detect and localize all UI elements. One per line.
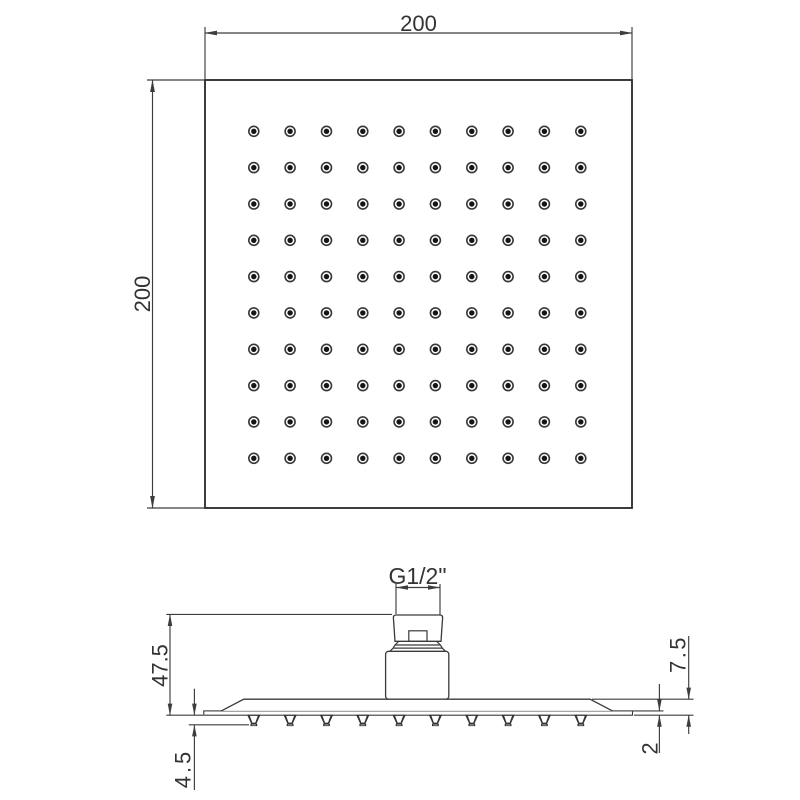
svg-text:200: 200 bbox=[130, 276, 155, 313]
svg-text:4.5: 4.5 bbox=[170, 749, 195, 789]
svg-text:G1/2": G1/2" bbox=[388, 563, 446, 589]
svg-text:200: 200 bbox=[400, 11, 437, 36]
svg-text:2: 2 bbox=[637, 742, 662, 754]
svg-text:7.5: 7.5 bbox=[665, 635, 690, 673]
svg-text:47.5: 47.5 bbox=[148, 644, 173, 687]
